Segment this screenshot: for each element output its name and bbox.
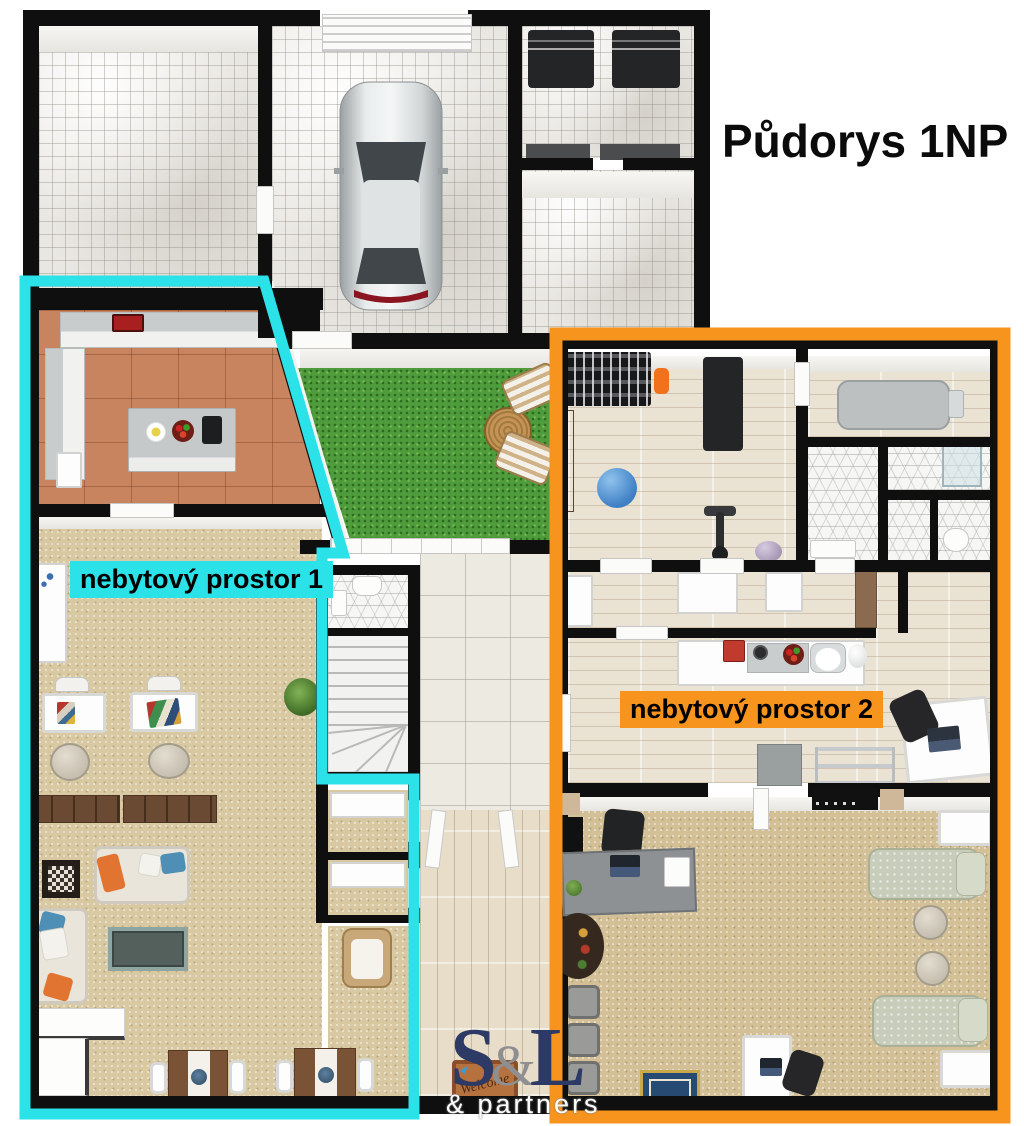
shower-tray [810,540,856,558]
gym-ball-purple [755,541,782,562]
fruit-bowl-2 [783,644,804,665]
dining-table-2 [294,1048,356,1100]
pillow-orange-2 [42,972,74,1002]
stool-2 [915,951,950,986]
laptop-2 [927,725,961,752]
dining-table-1 [168,1050,228,1102]
wall [990,344,1006,1104]
zone2-label: nebytový prostor 2 [620,691,883,728]
sofa-1 [94,846,190,904]
sink [810,643,846,673]
side-table-bottom [940,1050,994,1088]
side-table-gray [757,744,802,786]
pillow-blue-1 [160,851,187,874]
espresso-machine [723,640,745,662]
wall [285,333,1006,349]
wall [508,20,522,344]
wall [316,915,420,923]
wall [468,10,710,26]
foam-roller [654,368,669,394]
therapy-laptop [760,1058,782,1076]
wall [556,628,616,638]
wall [316,852,420,860]
pillow-white-1 [137,852,162,877]
wall-box-beige-2 [562,793,580,815]
floorplan-canvas: Welcome Půdorys 1NP [0,0,1024,1126]
zone1-label: nebytový prostor 1 [70,561,333,598]
wall [258,20,272,186]
corridor-door-2 [700,558,744,574]
wall [694,10,710,344]
table2-bowl [318,1067,334,1083]
therapy-wallface [568,797,992,811]
dining1-chair-left [150,1062,167,1094]
closet-door-1 [407,800,421,842]
office-plant [284,678,320,716]
wall [878,447,888,563]
hallway-floor [420,553,556,810]
av-cabinet-1 [528,30,594,88]
wall-clock-panel [812,788,878,810]
wicker-chair [342,928,392,988]
terrace-sliding-door [330,538,510,554]
chessboard [48,866,74,892]
interior-door [256,186,274,234]
massage-table [837,380,950,430]
magazine-table-round [552,913,604,979]
wall [316,772,420,782]
pouf-1 [50,743,90,781]
wall [522,158,593,170]
exercise-bike [700,504,740,562]
garage-door [322,14,472,52]
car [332,80,450,312]
corridor-door-1 [600,558,652,574]
closet1-shelf [330,792,406,818]
pan [753,645,768,660]
wicker-cushion [351,939,383,979]
fridge [56,452,82,488]
dining1-chair-right [229,1060,246,1094]
wc-sink [331,590,347,616]
wc1-floor [888,500,930,563]
sofa-2 [32,908,88,1004]
closet-door-2 [407,868,421,908]
magazines-2 [146,698,181,728]
shower-enclosure [942,445,982,487]
wall [23,10,39,1112]
banana-plate [146,422,166,442]
clothes-rack [815,747,895,785]
side-table-top [938,810,992,846]
desk1-chairback [55,677,89,692]
wall [258,234,272,292]
wall-cabinet-2 [677,572,738,614]
kitchenette-door [616,626,668,640]
coffee-table [108,927,188,971]
wall [316,628,420,636]
gym-door [794,362,810,406]
wall [30,504,112,517]
reception-laptop [610,855,640,877]
wall [878,490,996,500]
printer [664,857,690,887]
fruit-bowl [172,420,194,442]
page-title: Půdorys 1NP [722,114,1008,168]
pillow-white-2 [39,927,70,961]
desk-plant [566,880,582,896]
wall-cabinet-3 [765,572,803,612]
corner-counter [27,1008,125,1040]
kitchen-counter-top [60,312,288,348]
dining2-chair-left [276,1060,293,1093]
kitchen-door [110,503,174,518]
bed2-cushion [958,998,988,1042]
wall-box-beige [880,789,904,810]
storeroom-wallface [39,26,258,52]
chess-table [42,860,80,898]
wall [623,158,694,170]
watermark-logo: S&L & partners [450,1018,650,1117]
wardrobe [855,570,877,628]
stool-1 [913,905,948,940]
magazines-1 [57,702,75,724]
tech2-wallface [522,172,694,198]
staircase [328,634,410,772]
treadmill [703,357,743,451]
orange-zone-door [553,694,571,752]
office-wallface [37,517,322,529]
av-cabinet-2 [612,30,680,88]
bathroom-door [815,558,855,574]
wall [172,504,330,517]
dining2-chair-right [357,1058,374,1092]
terrace-door [292,331,352,349]
wall [930,500,938,563]
cooktop [112,314,144,332]
pillow-orange-1 [96,853,126,893]
bed1-cushion [956,852,986,896]
wall [796,437,996,447]
dumbbell-rack [565,352,651,406]
sideboard-2 [123,795,217,823]
watermark-subtitle: & partners [446,1092,650,1118]
wall [668,628,876,638]
terrace-wallface [300,347,556,368]
gym-ball-blue [597,468,637,508]
closet2-shelf [330,862,406,888]
wc-toilet [352,576,382,596]
coffee-machine [202,416,222,444]
soap-dispenser [848,644,867,668]
desk2-chairback [147,676,181,691]
sideboard-1 [30,795,120,823]
therapy-door-leaf [753,788,769,830]
table1-bowl [191,1069,207,1085]
massage-wallface [808,356,992,372]
toilet [943,528,969,552]
storeroom-floor [39,26,258,292]
wall [23,10,320,26]
wall [898,565,908,633]
massage-headrest [948,390,964,418]
pouf-2 [148,743,190,779]
